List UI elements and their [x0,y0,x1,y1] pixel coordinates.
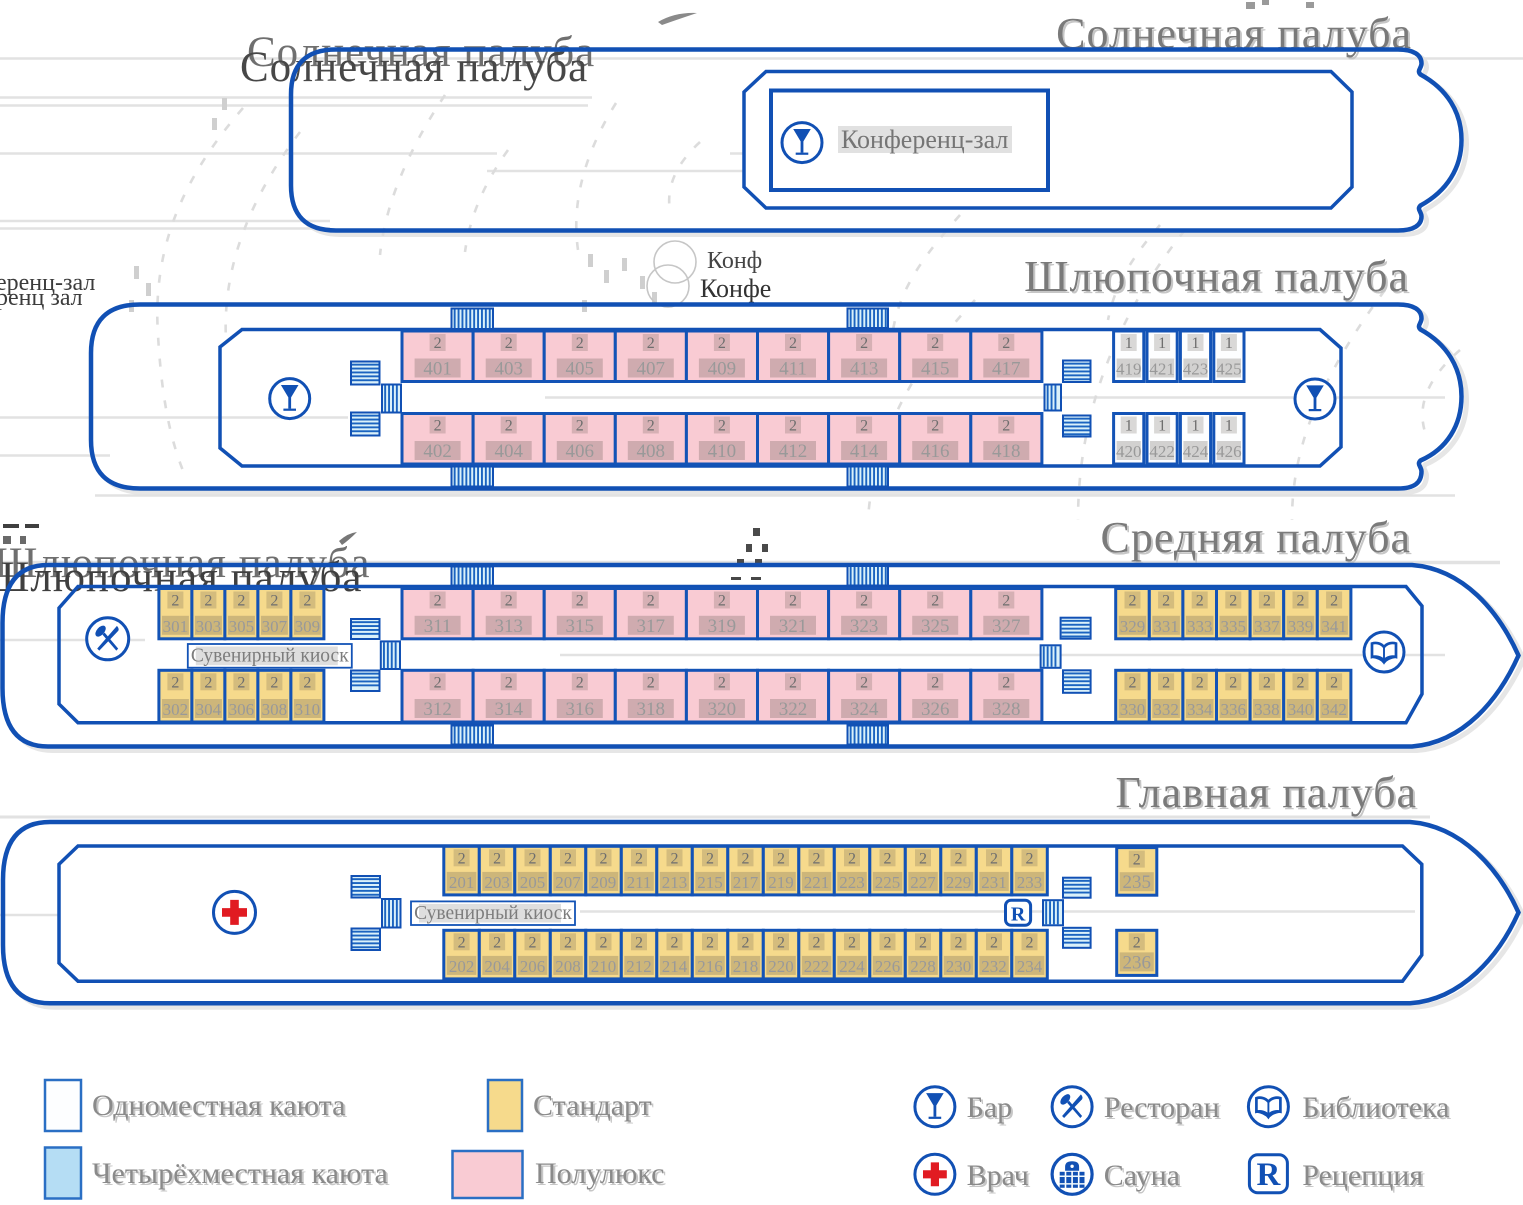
svg-text:2: 2 [990,934,998,951]
svg-text:204: 204 [484,957,510,976]
svg-text:412: 412 [779,441,808,462]
svg-text:232: 232 [981,957,1007,976]
svg-text:408: 408 [637,441,666,462]
svg-text:2: 2 [1129,593,1137,610]
svg-text:2: 2 [789,593,797,610]
svg-text:320: 320 [708,699,737,720]
svg-text:328: 328 [992,699,1021,720]
svg-text:316: 316 [566,699,595,720]
svg-text:233: 233 [1017,873,1043,892]
svg-text:1: 1 [1225,418,1233,435]
svg-text:230: 230 [946,957,972,976]
svg-text:2: 2 [813,850,821,867]
svg-text:319: 319 [708,616,737,637]
svg-text:2: 2 [884,850,892,867]
svg-text:2: 2 [1263,674,1271,691]
svg-text:2: 2 [1162,674,1170,691]
svg-text:403: 403 [494,359,523,380]
svg-text:2: 2 [1133,934,1141,951]
svg-text:Сувенирный киоск: Сувенирный киоск [414,903,572,924]
svg-text:2: 2 [706,850,714,867]
svg-text:2: 2 [270,593,278,610]
svg-text:2: 2 [919,934,927,951]
svg-text:406: 406 [566,441,595,462]
svg-text:336: 336 [1221,700,1247,719]
svg-text:2: 2 [1129,674,1137,691]
svg-text:2: 2 [237,593,245,610]
svg-text:224: 224 [839,957,865,976]
svg-text:231: 231 [981,873,1007,892]
svg-text:301: 301 [163,617,189,636]
svg-text:310: 310 [295,700,321,719]
svg-text:2: 2 [576,674,584,691]
svg-text:322: 322 [779,699,808,720]
svg-text:2: 2 [1133,852,1141,869]
svg-text:2: 2 [919,850,927,867]
svg-text:313: 313 [494,616,523,637]
svg-text:2: 2 [1229,674,1237,691]
svg-text:2: 2 [777,850,785,867]
svg-text:2: 2 [1002,674,1010,691]
svg-text:210: 210 [591,957,617,976]
svg-text:2: 2 [931,418,939,435]
svg-text:Главная палуба: Главная палуба [1116,768,1417,817]
svg-text:307: 307 [262,617,288,636]
svg-text:323: 323 [850,616,879,637]
svg-text:2: 2 [848,850,856,867]
svg-text:214: 214 [662,957,688,976]
svg-text:2: 2 [576,335,584,352]
svg-text:216: 216 [697,957,723,976]
svg-text:Четырёхместная каюта: Четырёхместная каюта [92,1157,388,1190]
svg-text:227: 227 [910,873,936,892]
svg-text:2: 2 [600,850,608,867]
svg-text:Шлюпочная палуба: Шлюпочная палуба [1024,252,1409,301]
svg-text:Библиотека: Библиотека [1302,1091,1449,1124]
svg-text:2: 2 [742,934,750,951]
svg-text:2: 2 [576,593,584,610]
svg-text:309: 309 [295,617,321,636]
svg-text:2: 2 [718,418,726,435]
svg-text:331: 331 [1153,617,1179,636]
svg-text:419: 419 [1116,360,1142,379]
svg-text:417: 417 [992,359,1021,380]
svg-text:2: 2 [171,674,179,691]
svg-text:340: 340 [1288,700,1314,719]
svg-text:405: 405 [566,359,595,380]
svg-text:424: 424 [1183,442,1209,461]
svg-text:2: 2 [1330,593,1338,610]
svg-text:Конфе: Конфе [700,274,771,303]
svg-text:225: 225 [875,873,901,892]
svg-text:Конф: Конф [707,248,762,274]
svg-text:325: 325 [921,616,950,637]
svg-text:1: 1 [1125,335,1133,352]
svg-text:329: 329 [1120,617,1146,636]
svg-text:409: 409 [708,359,737,380]
svg-text:2: 2 [237,674,245,691]
svg-text:Полулюкс: Полулюкс [535,1157,664,1190]
svg-text:211: 211 [627,873,652,892]
svg-text:334: 334 [1187,700,1213,719]
svg-text:Одноместная каюта: Одноместная каюта [92,1089,345,1122]
svg-text:413: 413 [850,359,879,380]
svg-text:305: 305 [229,617,255,636]
svg-text:402: 402 [423,441,452,462]
svg-text:218: 218 [733,957,759,976]
svg-text:2: 2 [955,934,963,951]
svg-text:2: 2 [789,335,797,352]
svg-text:420: 420 [1116,442,1142,461]
svg-text:202: 202 [449,957,475,976]
svg-text:426: 426 [1216,442,1242,461]
svg-text:212: 212 [626,957,652,976]
svg-text:335: 335 [1221,617,1247,636]
svg-text:342: 342 [1321,700,1347,719]
svg-text:2: 2 [860,593,868,610]
svg-text:2: 2 [931,593,939,610]
svg-text:Бар: Бар [967,1091,1013,1124]
svg-text:1: 1 [1225,335,1233,352]
svg-text:2: 2 [647,418,655,435]
svg-text:217: 217 [733,873,759,892]
svg-text:2: 2 [505,418,513,435]
svg-text:Врач: Врач [967,1159,1029,1192]
svg-text:2: 2 [671,934,679,951]
svg-text:2: 2 [860,674,868,691]
svg-text:235: 235 [1123,872,1152,893]
svg-text:303: 303 [196,617,222,636]
svg-text:308: 308 [262,700,288,719]
svg-text:2: 2 [1263,593,1271,610]
svg-text:407: 407 [637,359,666,380]
svg-text:R: R [1011,903,1026,925]
svg-text:337: 337 [1254,617,1280,636]
svg-text:1: 1 [1125,418,1133,435]
svg-text:2: 2 [955,850,963,867]
svg-text:416: 416 [921,441,950,462]
svg-text:Сауна: Сауна [1104,1159,1180,1192]
svg-text:2: 2 [789,674,797,691]
svg-text:339: 339 [1288,617,1314,636]
svg-text:2: 2 [505,674,513,691]
svg-text:2: 2 [458,934,466,951]
svg-text:425: 425 [1216,360,1242,379]
svg-text:236: 236 [1123,952,1152,973]
svg-text:2: 2 [1196,593,1204,610]
svg-text:2: 2 [505,335,513,352]
svg-text:318: 318 [637,699,666,720]
svg-text:404: 404 [494,441,523,462]
svg-text:2: 2 [647,593,655,610]
svg-text:205: 205 [520,873,546,892]
svg-text:324: 324 [850,699,879,720]
svg-text:326: 326 [921,699,950,720]
svg-text:Средняя палуба: Средняя палуба [1101,513,1411,562]
svg-text:333: 333 [1187,617,1213,636]
svg-text:317: 317 [637,616,666,637]
svg-text:2: 2 [718,593,726,610]
svg-text:2: 2 [529,850,537,867]
svg-text:2: 2 [1002,335,1010,352]
svg-text:2: 2 [860,335,868,352]
svg-text:Ресторан: Ресторан [1104,1091,1220,1124]
svg-text:223: 223 [839,873,865,892]
svg-text:2: 2 [493,934,501,951]
svg-text:2: 2 [884,934,892,951]
svg-text:311: 311 [424,616,452,637]
svg-text:422: 422 [1149,442,1175,461]
svg-text:206: 206 [520,957,546,976]
svg-text:315: 315 [566,616,595,637]
svg-text:2: 2 [204,593,212,610]
svg-text:423: 423 [1183,360,1209,379]
svg-text:327: 327 [992,616,1021,637]
svg-text:2: 2 [303,593,311,610]
svg-text:2: 2 [1026,934,1034,951]
svg-text:312: 312 [423,699,452,720]
svg-text:2: 2 [647,674,655,691]
svg-text:306: 306 [229,700,255,719]
svg-text:330: 330 [1120,700,1146,719]
svg-text:2: 2 [270,674,278,691]
svg-text:226: 226 [875,957,901,976]
svg-text:401: 401 [423,359,452,380]
svg-text:2: 2 [789,418,797,435]
svg-text:2: 2 [493,850,501,867]
svg-text:2: 2 [1196,674,1204,691]
svg-text:411: 411 [779,359,807,380]
svg-text:220: 220 [768,957,794,976]
svg-text:2: 2 [434,418,442,435]
svg-text:2: 2 [1162,593,1170,610]
svg-text:2: 2 [1002,593,1010,610]
svg-text:2: 2 [458,850,466,867]
svg-text:1: 1 [1158,418,1166,435]
svg-text:1: 1 [1158,335,1166,352]
svg-text:229: 229 [946,873,972,892]
svg-text:2: 2 [718,674,726,691]
svg-text:2: 2 [718,335,726,352]
svg-text:207: 207 [555,873,581,892]
svg-text:Сувенирный киоск: Сувенирный киоск [191,646,349,667]
svg-text:302: 302 [163,700,189,719]
svg-text:415: 415 [921,359,950,380]
svg-text:2: 2 [564,850,572,867]
svg-text:2: 2 [671,850,679,867]
svg-text:2: 2 [434,674,442,691]
svg-text:314: 314 [494,699,523,720]
svg-text:228: 228 [910,957,936,976]
svg-text:2: 2 [1297,674,1305,691]
svg-text:341: 341 [1321,617,1347,636]
svg-text:2: 2 [1297,593,1305,610]
svg-text:2: 2 [777,934,785,951]
svg-text:2: 2 [505,593,513,610]
svg-text:418: 418 [992,441,1021,462]
svg-text:2: 2 [848,934,856,951]
svg-text:2: 2 [1026,850,1034,867]
svg-text:2: 2 [860,418,868,435]
svg-text:2: 2 [813,934,821,951]
svg-text:2: 2 [529,934,537,951]
svg-text:332: 332 [1153,700,1179,719]
svg-text:2: 2 [576,418,584,435]
svg-text:215: 215 [697,873,723,892]
svg-text:2: 2 [990,850,998,867]
svg-text:201: 201 [449,873,475,892]
svg-text:R: R [1256,1157,1281,1193]
svg-text:2: 2 [931,335,939,352]
svg-text:221: 221 [804,873,830,892]
svg-text:209: 209 [591,873,617,892]
svg-text:208: 208 [555,957,581,976]
svg-text:2: 2 [647,335,655,352]
svg-text:2: 2 [434,335,442,352]
svg-text:2: 2 [706,934,714,951]
svg-text:2: 2 [635,934,643,951]
svg-text:421: 421 [1149,360,1175,379]
svg-text:304: 304 [196,700,222,719]
svg-text:1: 1 [1192,335,1200,352]
svg-text:2: 2 [204,674,212,691]
svg-text:Стандарт: Стандарт [533,1089,652,1122]
svg-text:2: 2 [1330,674,1338,691]
svg-text:2: 2 [1229,593,1237,610]
svg-text:414: 414 [850,441,879,462]
svg-text:2: 2 [171,593,179,610]
svg-text:2: 2 [1002,418,1010,435]
svg-text:410: 410 [708,441,737,462]
svg-text:2: 2 [600,934,608,951]
svg-text:1: 1 [1192,418,1200,435]
svg-text:2: 2 [635,850,643,867]
svg-text:219: 219 [768,873,794,892]
svg-text:222: 222 [804,957,830,976]
svg-text:2: 2 [742,850,750,867]
svg-text:213: 213 [662,873,688,892]
svg-text:2: 2 [564,934,572,951]
svg-text:234: 234 [1017,957,1043,976]
svg-text:Рецепция: Рецепция [1302,1159,1423,1192]
svg-text:2: 2 [434,593,442,610]
svg-text:Конференц-зал: Конференц-зал [841,125,1008,154]
svg-text:203: 203 [484,873,510,892]
svg-text:2: 2 [931,674,939,691]
svg-text:321: 321 [779,616,808,637]
svg-text:338: 338 [1254,700,1280,719]
svg-text:2: 2 [303,674,311,691]
svg-text:ренц зал: ренц зал [0,285,83,311]
